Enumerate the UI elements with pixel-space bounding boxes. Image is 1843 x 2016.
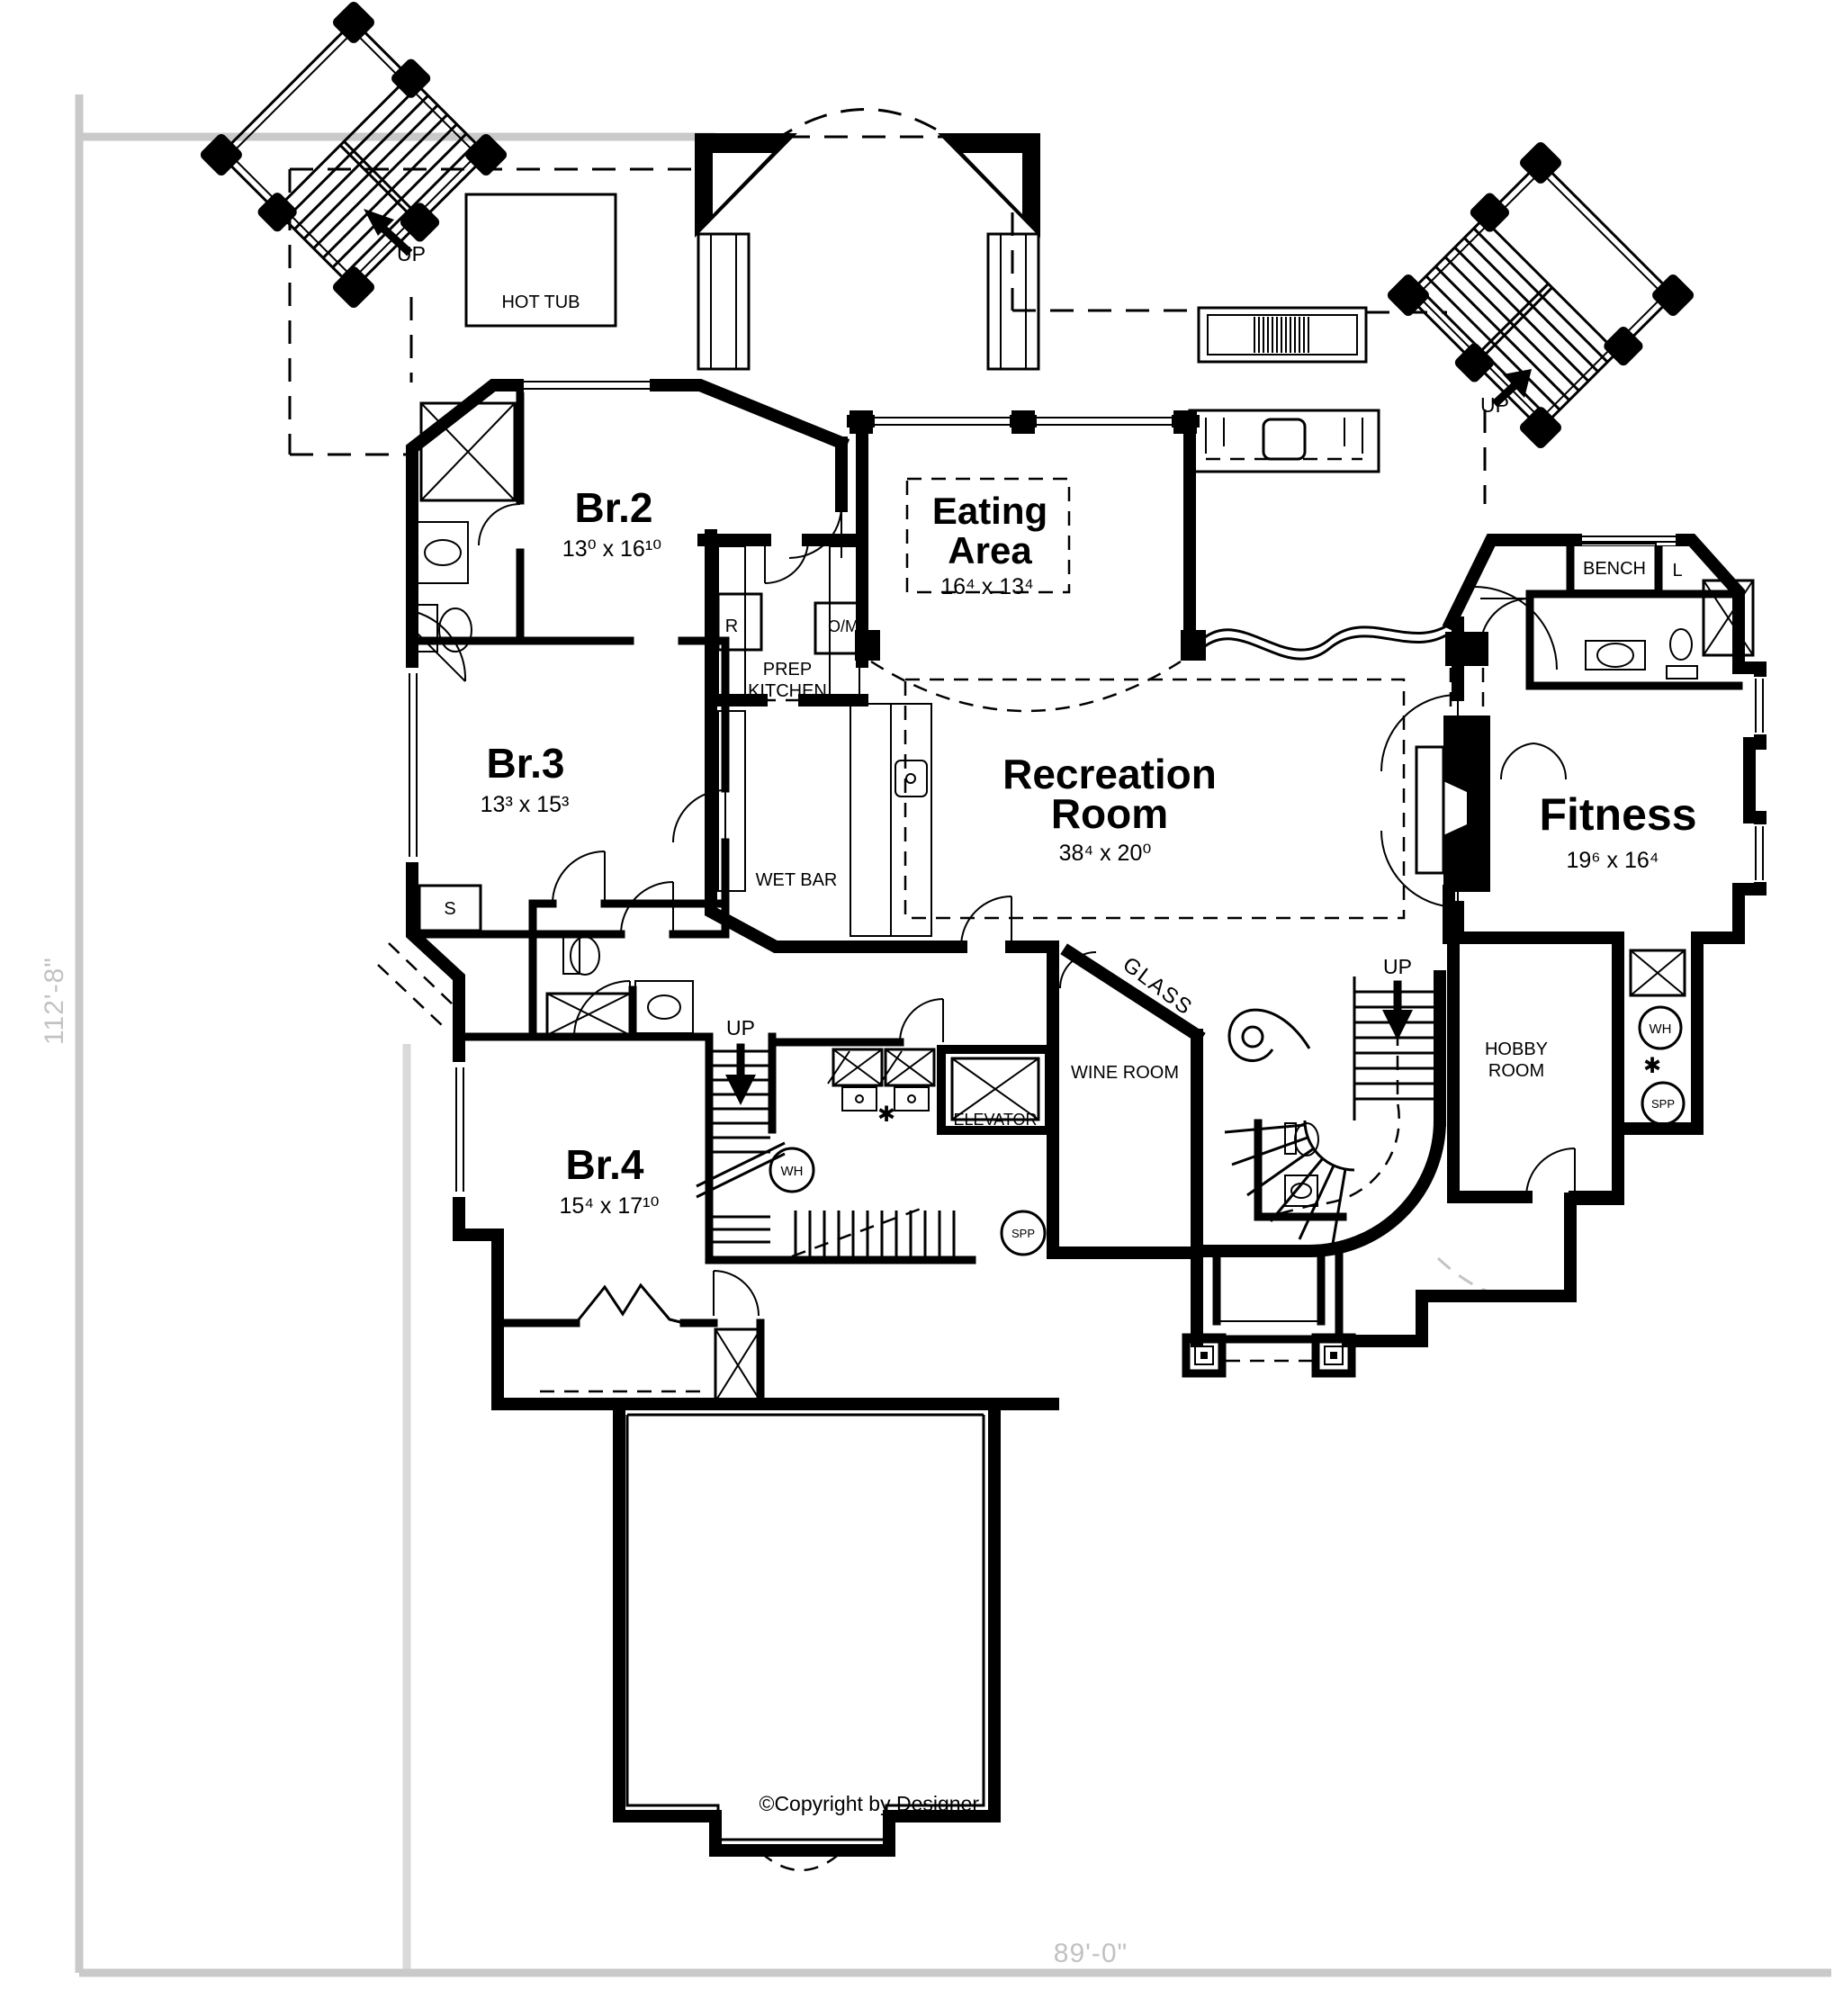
storage-label: S xyxy=(444,899,455,919)
elevator-label: ELEVATOR xyxy=(953,1111,1037,1129)
up-label-deck-stair-left: UP xyxy=(397,242,426,265)
room-label-recreation-2: Room xyxy=(1051,790,1168,837)
door-swings xyxy=(416,504,1575,1197)
dimension-height-label: 112'-8" xyxy=(40,957,69,1045)
room-dims-fitness: 19⁶ x 16⁴ xyxy=(1566,848,1659,873)
room-dims-br4: 15⁴ x 17¹⁰ xyxy=(559,1193,659,1219)
room-dims-br2: 13⁰ x 16¹⁰ xyxy=(562,536,661,562)
foundation-inner-lines xyxy=(627,1415,984,1840)
water-heater-label-1: WH xyxy=(781,1164,804,1179)
hot-tub: HOT TUB xyxy=(466,194,616,326)
oven-micro-label: O/M xyxy=(828,617,859,635)
floor-plan-canvas: 112'-8" 89'-0" xyxy=(0,0,1843,2016)
floor-drain-star: ✱ xyxy=(877,1102,895,1127)
prep-kitchen-label-2: KITCHEN xyxy=(748,681,827,701)
hobby-room-label-2: ROOM xyxy=(1488,1061,1544,1081)
up-label-main-stair: UP xyxy=(726,1016,755,1039)
room-dims-recreation: 38⁴ x 20⁰ xyxy=(1059,841,1152,866)
exterior-walls xyxy=(412,385,1760,1850)
room-dims-eating: 16⁴ x 13⁴ xyxy=(940,574,1034,599)
main-stair: UP xyxy=(697,1016,954,1258)
room-dims-br3: 13³ x 15³ xyxy=(481,792,570,817)
wine-room-label: WINE ROOM xyxy=(1071,1063,1179,1083)
outdoor-grill xyxy=(1199,308,1366,362)
prep-kitchen-label-1: PREP xyxy=(763,660,812,679)
up-label-curved-stair: UP xyxy=(1383,955,1412,978)
room-label-eating-2: Area xyxy=(948,529,1032,571)
deck-stair-upper-right: UP xyxy=(1385,139,1695,450)
linen-label: L xyxy=(1672,561,1682,580)
hobby-room-label-1: HOBBY xyxy=(1485,1039,1548,1059)
sump-pump-label-1: SPP xyxy=(1011,1227,1035,1240)
fridge-label: R xyxy=(725,616,738,636)
room-label-br4: Br.4 xyxy=(566,1141,644,1188)
dimension-width-label: 89'-0" xyxy=(1054,1939,1128,1968)
deck-stair-upper-left: UP xyxy=(198,0,508,310)
porch-braces xyxy=(695,133,1040,369)
copyright-text: ©Copyright by Designer xyxy=(760,1792,980,1815)
water-heater-label-2: WH xyxy=(1650,1021,1672,1037)
room-label-eating-1: Eating xyxy=(932,490,1047,532)
sump-pump-label-2: SPP xyxy=(1651,1097,1675,1111)
floor-drain-star-2: ✱ xyxy=(1643,1054,1661,1078)
room-label-br2: Br.2 xyxy=(575,484,653,531)
room-label-fitness: Fitness xyxy=(1539,789,1696,840)
utility-fixtures: ✱ xyxy=(828,1049,934,1127)
bench-label: BENCH xyxy=(1583,559,1646,579)
curved-glass-wall xyxy=(1199,625,1449,659)
hot-tub-label: HOT TUB xyxy=(501,292,580,312)
outdoor-bench xyxy=(1190,410,1379,472)
rear-porch xyxy=(1186,1253,1352,1373)
deck-dashed-outline xyxy=(290,110,1485,1871)
elevator: ELEVATOR xyxy=(941,1049,1049,1130)
wet-bar-label: WET BAR xyxy=(756,870,838,890)
up-label-deck-stair-right: UP xyxy=(1480,393,1509,417)
room-label-br3: Br.3 xyxy=(487,740,565,787)
